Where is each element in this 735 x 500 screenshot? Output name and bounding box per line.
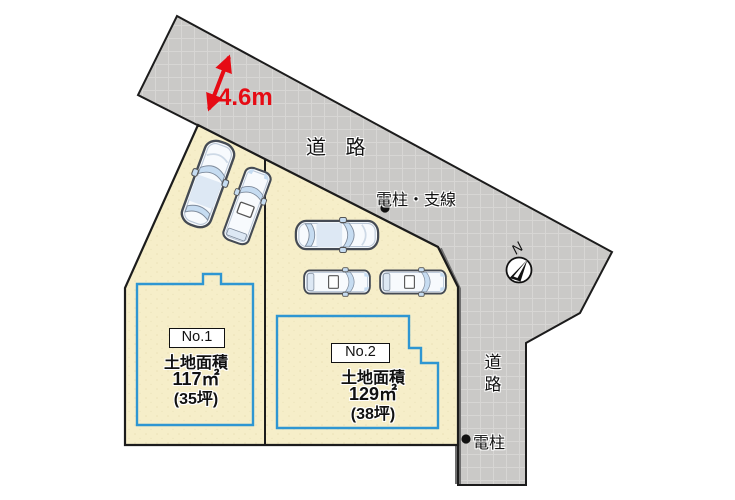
- parked-car: [380, 268, 446, 297]
- dimension-label: 4.6m: [218, 84, 273, 112]
- parked-car: [296, 217, 378, 252]
- parcel-2-area-tsubo: (38坪): [313, 400, 433, 424]
- utility-pole-dot: [461, 434, 470, 443]
- site-plan-diagram: 道 路 道 路 4.6m 電柱・支線 電柱 N No.1 土地面積 117㎡ (…: [0, 0, 735, 500]
- parked-car: [304, 268, 370, 297]
- pole-guy-wire-label: 電柱・支線: [376, 186, 456, 210]
- parcel-1-area-tsubo: (35坪): [136, 385, 256, 409]
- compass-icon: [507, 258, 532, 283]
- parcel-1-number-badge: No.1: [169, 328, 225, 348]
- road-label-right-char2: 路: [482, 374, 504, 396]
- pole-label: 電柱: [473, 429, 505, 453]
- plot-plan-svg: [0, 0, 735, 500]
- parcel-2-number-badge: No.2: [331, 343, 390, 363]
- road-label-right: 道 路: [482, 352, 504, 396]
- road-label-top: 道 路: [306, 131, 373, 160]
- road-label-right-char1: 道: [482, 352, 504, 374]
